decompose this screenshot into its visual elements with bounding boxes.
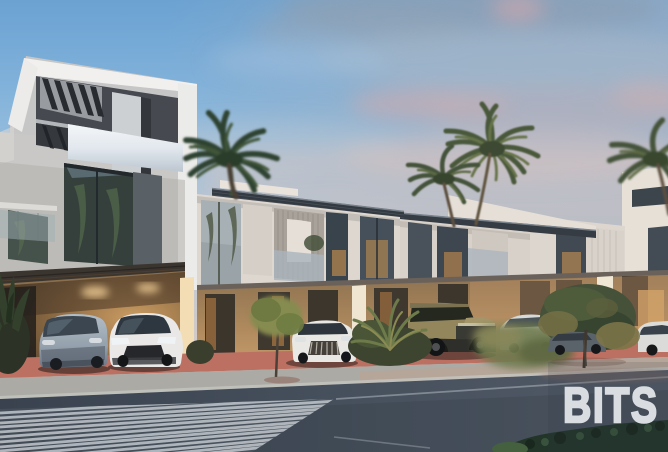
svg-text:BITS: BITS bbox=[563, 379, 659, 433]
